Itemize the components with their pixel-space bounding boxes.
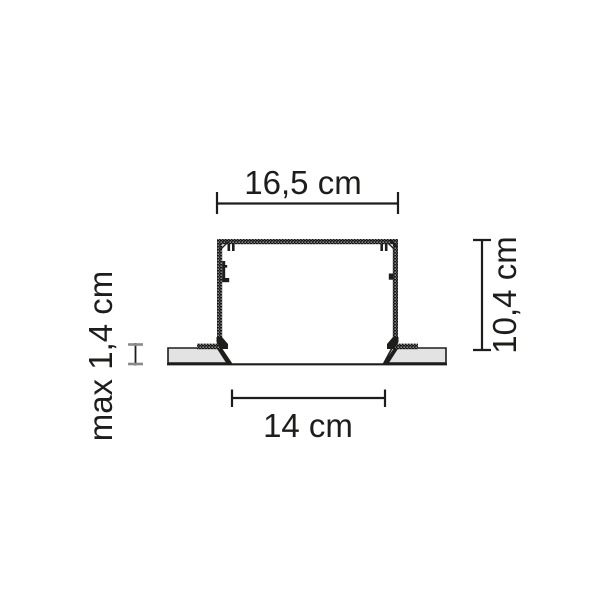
ceiling-panels [168, 348, 446, 363]
top-tabs-left [228, 244, 235, 251]
cutout-width-label: 14 cm [263, 407, 353, 444]
panel-thickness-label: max 1,4 cm [82, 271, 119, 442]
profile-top-wall [217, 239, 398, 244]
profile-cross-section-diagram: 16,5 cm 10,4 cm [0, 0, 600, 600]
drawing-canvas: 16,5 cm 10,4 cm [0, 0, 600, 600]
right-wall-stud [389, 274, 394, 280]
left-wall-hook [222, 261, 229, 282]
profile-body [197, 239, 418, 364]
profile-left-wall [217, 239, 222, 348]
cutout-width-dimension [232, 390, 385, 408]
top-tabs-right [380, 244, 387, 251]
top-width-label: 16,5 cm [244, 164, 361, 201]
panel-thickness-dimension [128, 343, 143, 366]
profile-right-wall [393, 239, 398, 348]
height-label: 10,4 cm [486, 236, 523, 353]
